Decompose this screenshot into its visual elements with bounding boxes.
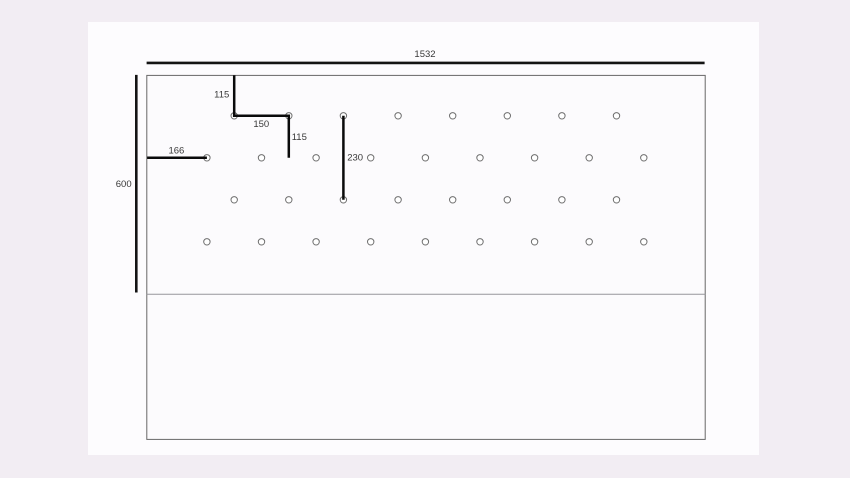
svg-text:600: 600	[116, 179, 132, 190]
svg-text:1532: 1532	[414, 49, 435, 60]
svg-text:230: 230	[347, 153, 363, 164]
svg-text:115: 115	[292, 132, 307, 143]
svg-text:166: 166	[168, 146, 184, 157]
svg-text:150: 150	[253, 119, 269, 130]
svg-text:115: 115	[214, 89, 229, 100]
